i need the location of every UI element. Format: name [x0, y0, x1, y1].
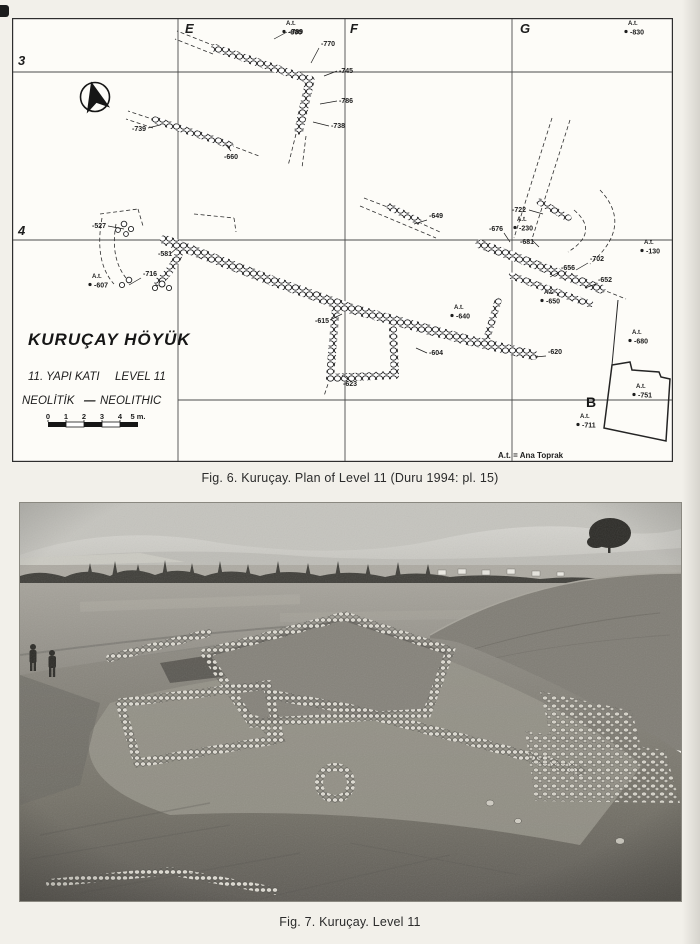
datum-label: A.t.	[580, 414, 590, 420]
plan-period-turkish: NEOLİTİK	[22, 395, 76, 407]
spot-elevation-label: -739	[132, 126, 146, 133]
datum-dot	[540, 299, 543, 302]
figure6-plan: B KURUÇAY HÖYÜK 11. YAPI KATI LEVEL 11 N…	[12, 18, 673, 462]
plan-svg: B KURUÇAY HÖYÜK 11. YAPI KATI LEVEL 11 N…	[12, 18, 673, 462]
spot-elevation-label: -604	[429, 350, 443, 357]
datum-label: A.t.	[644, 240, 654, 246]
grid-column-label: E	[185, 21, 194, 36]
spot-elevation-label: -681	[520, 239, 534, 246]
spot-elevation-label: -527	[92, 223, 106, 230]
spot-elevation-label: -789	[289, 29, 303, 36]
spot-elevation-label: -656	[561, 265, 575, 272]
scale-unit-label: 5 m.	[130, 412, 145, 421]
spot-elevation-label: -702	[590, 256, 604, 263]
spot-elevation-label: -620	[548, 349, 562, 356]
datum-dot	[513, 226, 516, 229]
datum-value: -607	[94, 283, 108, 290]
datum-dot	[640, 249, 643, 252]
sounding-b-label: B	[586, 394, 596, 410]
spot-elevation-label: -652	[598, 277, 612, 284]
figure7-photo	[20, 503, 681, 901]
plan-period-separator: —	[83, 395, 96, 407]
spot-elevation-label: -676	[489, 226, 503, 233]
datum-value: -711	[582, 423, 596, 430]
spot-elevation-label: -745	[339, 68, 353, 75]
datum-label: A.t.	[286, 21, 296, 27]
spot-elevation-label: -581	[158, 251, 172, 258]
plan-phase-english: LEVEL 11	[115, 371, 166, 383]
grid-row-label: 4	[17, 223, 26, 238]
datum-dot	[628, 339, 631, 342]
figure6-caption: Fig. 6. Kuruçay. Plan of Level 11 (Duru …	[0, 471, 700, 485]
datum-value: -230	[519, 226, 533, 233]
scan-artifact-mark	[0, 5, 9, 17]
scale-tick-label: 2	[82, 412, 86, 421]
datum-value: -650	[546, 299, 560, 306]
datum-value: -680	[634, 339, 648, 346]
datum-value: -830	[630, 30, 644, 37]
datum-value: -130	[646, 249, 660, 256]
spot-elevation-label: -660	[224, 154, 238, 161]
spot-elevation-label: -649	[429, 213, 443, 220]
photo-vignette	[20, 503, 681, 901]
spot-elevation-label: -716	[143, 271, 157, 278]
spot-elevation-label: -738	[331, 123, 345, 130]
plan-phase-turkish: 11. YAPI KATI	[28, 371, 100, 383]
datum-label: A.t.	[636, 384, 646, 390]
spot-elevation-label: -770	[321, 41, 335, 48]
spot-elevation-label: -623	[343, 381, 357, 388]
plan-site-title: KURUÇAY HÖYÜK	[28, 330, 191, 349]
datum-dot	[88, 283, 91, 286]
datum-label: A.t.	[544, 290, 554, 296]
figure7-caption: Fig. 7. Kuruçay. Level 11	[0, 915, 700, 929]
plan-period-english: NEOLITHIC	[100, 395, 162, 407]
scale-tick-label: 3	[100, 412, 104, 421]
grid-row-label: 3	[18, 53, 26, 68]
spot-elevation-label: -722	[512, 207, 526, 214]
photo-svg	[20, 503, 681, 901]
spot-elevation-label: -786	[339, 98, 353, 105]
datum-dot	[624, 30, 627, 33]
datum-label: A.t.	[628, 21, 638, 27]
grid-column-label: G	[520, 21, 530, 36]
datum-label: A.t.	[92, 274, 102, 280]
datum-value: -751	[638, 393, 652, 400]
datum-label: A.t.	[454, 305, 464, 311]
datum-label: A.t.	[632, 330, 642, 336]
datum-dot	[450, 314, 453, 317]
datum-value: -640	[456, 314, 470, 321]
datum-dot	[632, 393, 635, 396]
scale-tick-label: 1	[64, 412, 68, 421]
legend-note: A.t. = Ana Toprak	[498, 451, 564, 460]
spot-elevation-label: -615	[315, 318, 329, 325]
datum-label: A.t.	[517, 217, 527, 223]
scale-tick-label: 0	[46, 412, 50, 421]
grid-column-label: F	[350, 21, 359, 36]
scanned-paper-page: { "colors":{"ink":"#1d1d1d","paper":"#f2…	[0, 0, 700, 944]
datum-dot	[576, 423, 579, 426]
